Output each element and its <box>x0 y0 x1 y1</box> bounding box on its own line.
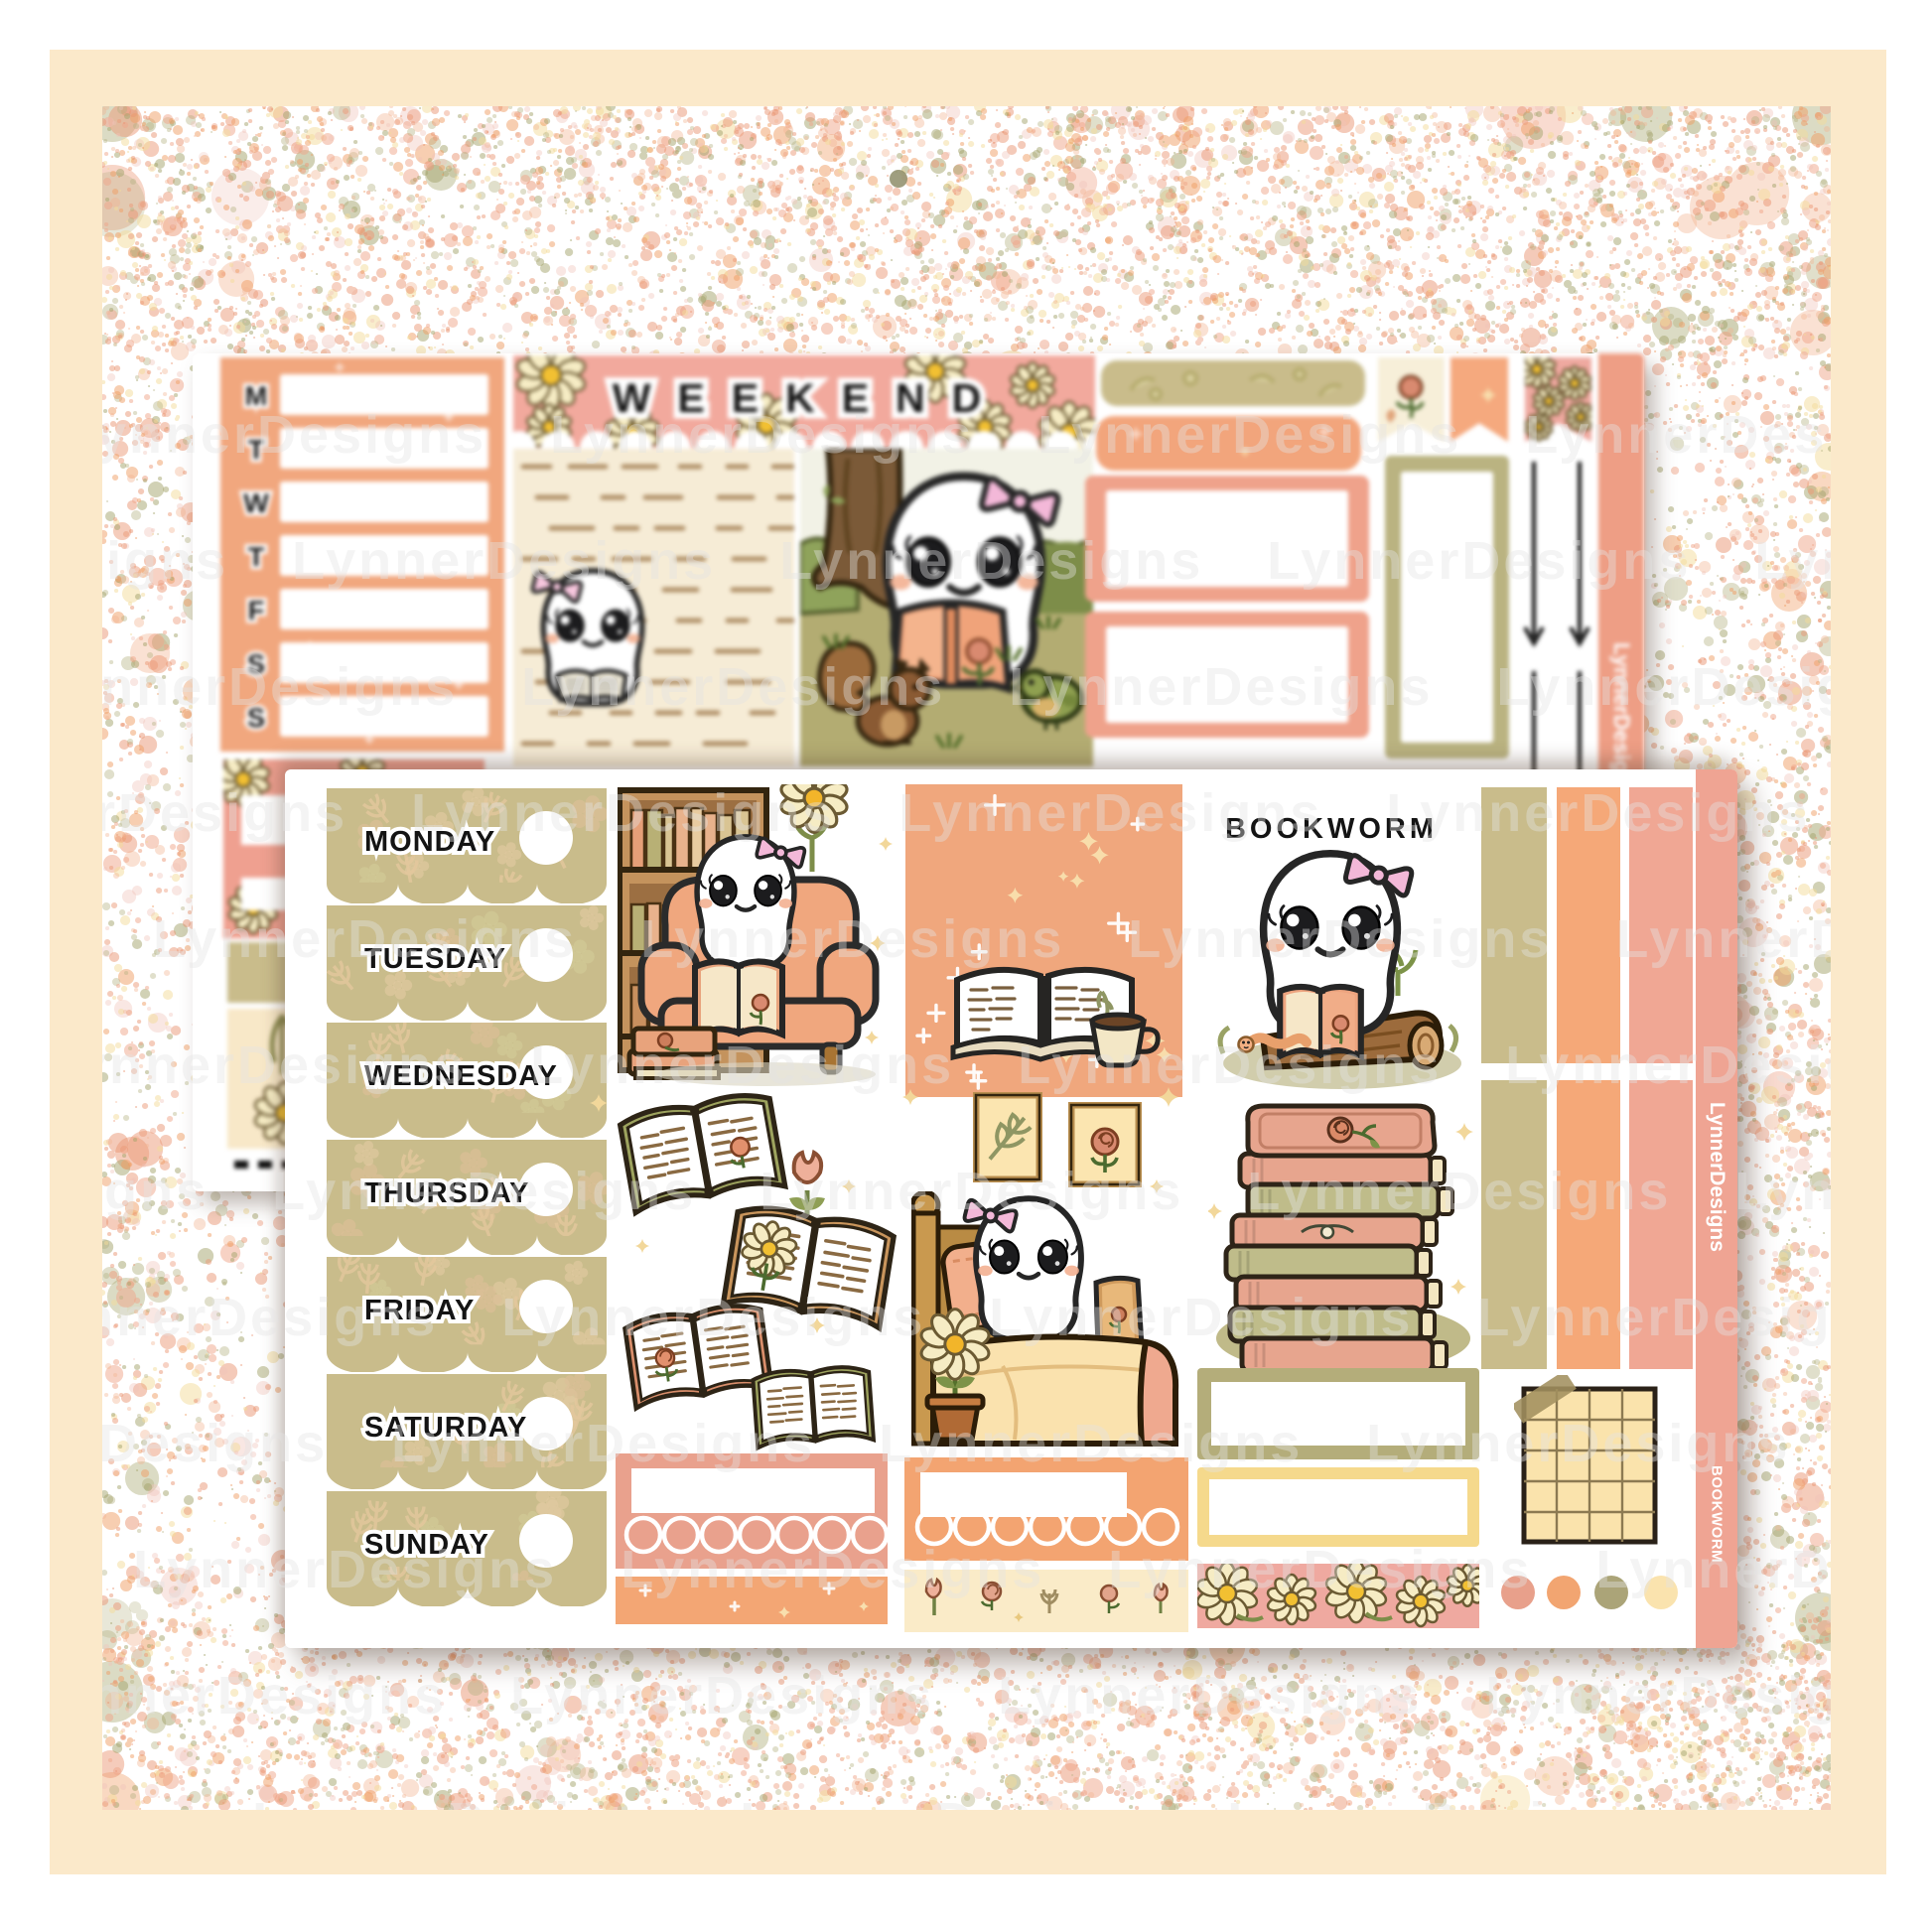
svg-text:S: S <box>247 703 265 733</box>
svg-text:F: F <box>248 596 265 625</box>
svg-text:MONDAY: MONDAY <box>364 826 495 858</box>
svg-text:S: S <box>247 649 265 679</box>
svg-text:SUNDAY: SUNDAY <box>364 1529 489 1561</box>
svg-text:WEDNESDAY: WEDNESDAY <box>364 1060 558 1092</box>
svg-text:FRIDAY: FRIDAY <box>364 1295 475 1326</box>
svg-text:T: T <box>248 542 265 572</box>
svg-text:M: M <box>245 381 268 411</box>
svg-text:WEEKEND: WEEKEND <box>613 375 1009 421</box>
svg-text:SATURDAY: SATURDAY <box>364 1412 527 1444</box>
svg-text:W: W <box>243 488 269 518</box>
svg-text:TUESDAY: TUESDAY <box>364 943 506 975</box>
svg-text:T: T <box>248 435 265 465</box>
svg-text:THURSDAY: THURSDAY <box>364 1177 529 1209</box>
svg-text:BOOKWORM: BOOKWORM <box>1225 813 1438 845</box>
